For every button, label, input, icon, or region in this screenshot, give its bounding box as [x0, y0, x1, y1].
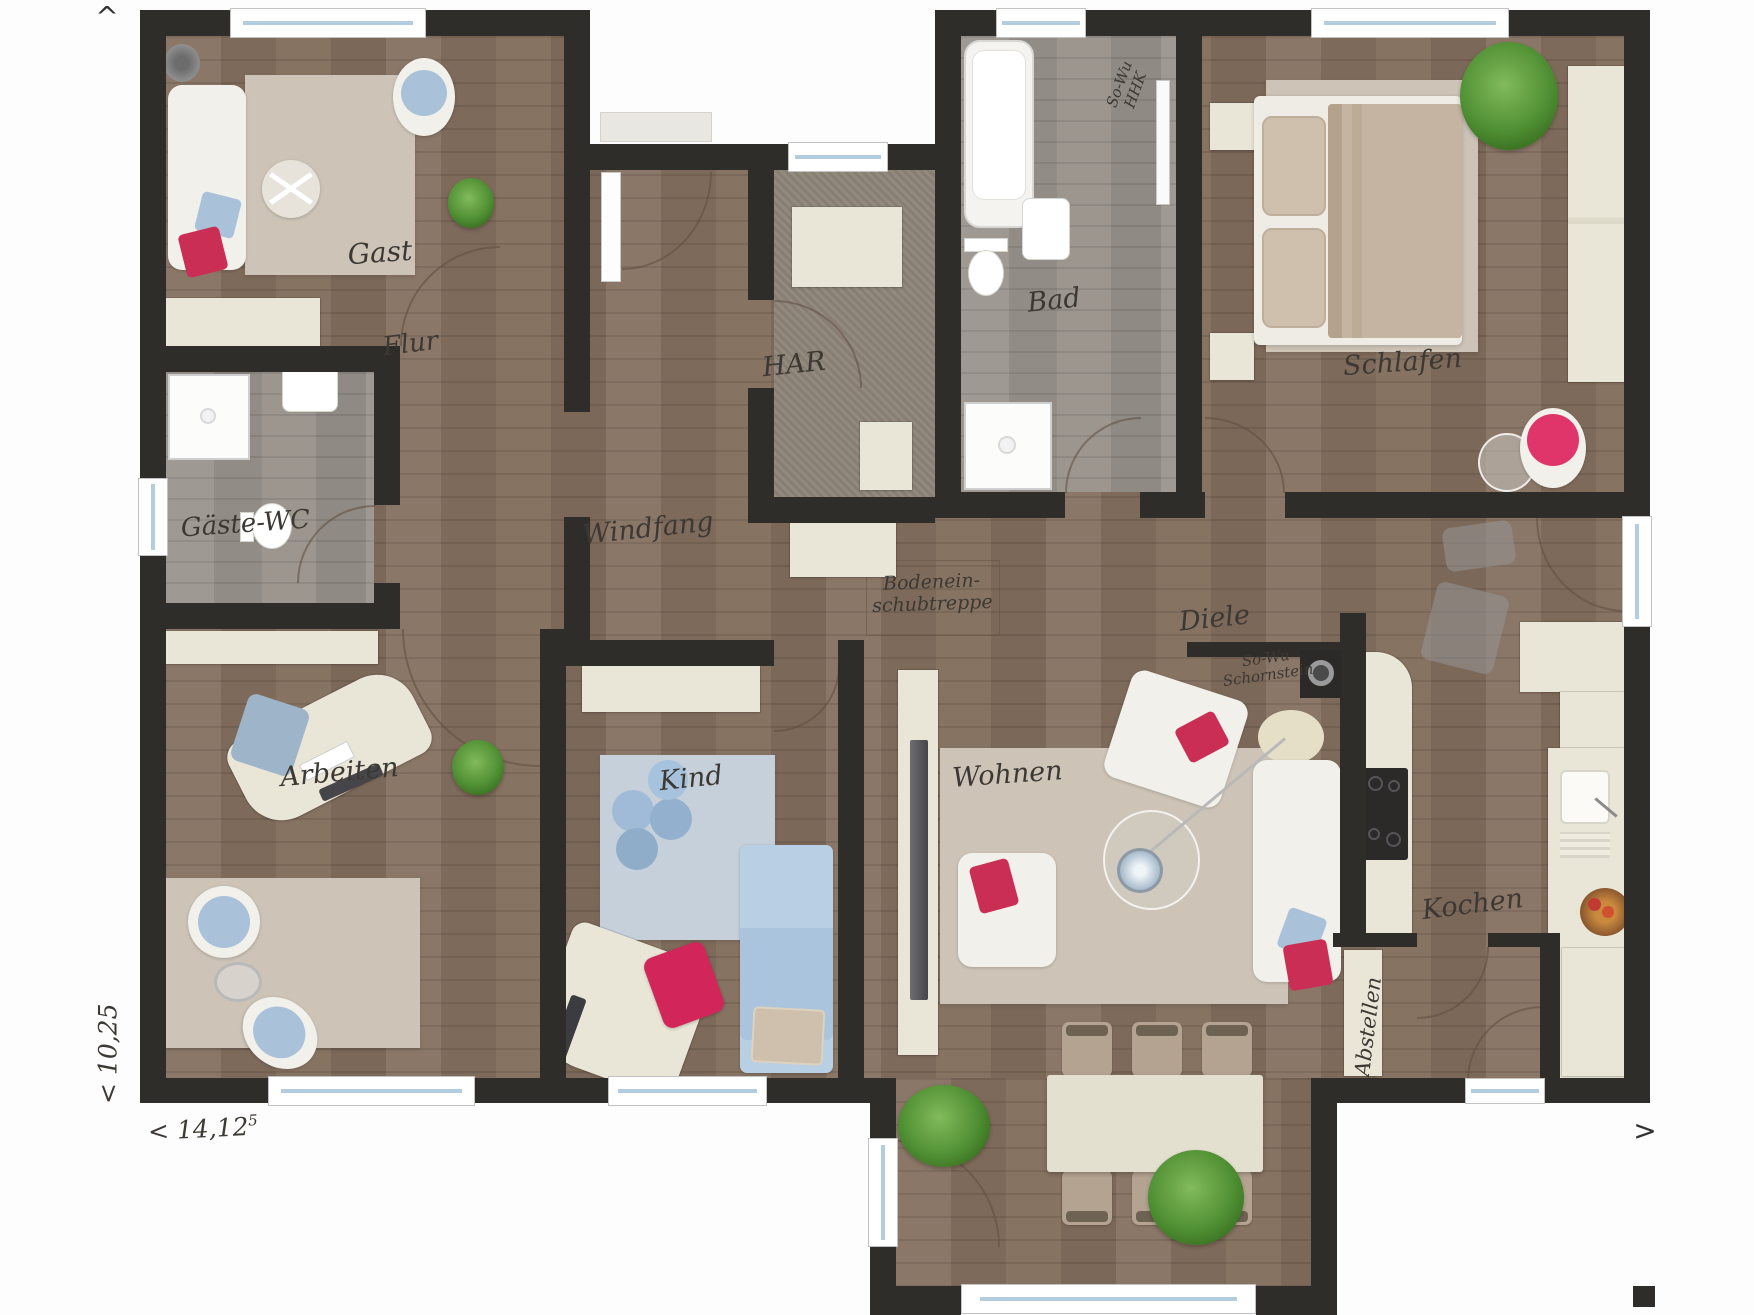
towel-radiator [1156, 80, 1170, 205]
wall-mid-top [566, 144, 961, 170]
annotation-attic-stairs: Bodenein- schubtreppe [869, 570, 994, 618]
dining-table [1047, 1075, 1263, 1172]
side-table-office [214, 962, 262, 1002]
plant-dining-right [1148, 1150, 1244, 1245]
wall-hall-top-c [1285, 492, 1624, 518]
window-har [788, 142, 888, 172]
wall-office-kid-divider [540, 629, 566, 1078]
terrace-door-kitchen [1622, 516, 1652, 627]
cushion-kid-petal-2 [650, 798, 692, 840]
wall-wc-top [140, 346, 400, 372]
kitchen-sink-drainboard [1560, 832, 1610, 858]
bed-kid-pillow [751, 1006, 826, 1066]
entry-mat [600, 112, 712, 142]
dimension-width-exponent: 5 [248, 1111, 258, 1129]
dimension-width-value: < 14,12 [147, 1112, 249, 1146]
arc-lamp-head [1117, 848, 1163, 893]
cushion-kid-petal-1 [612, 790, 654, 832]
nightstand-2 [1210, 333, 1254, 380]
plant-office [452, 740, 504, 795]
wall-bottom-b [475, 1078, 608, 1103]
wall-bath-left [935, 10, 961, 492]
site-corner-marker [1633, 1286, 1655, 1307]
dimension-depth: < 10,25 [94, 986, 122, 1122]
wall-ext-bottom-a [870, 1286, 961, 1315]
wall-ext-left-b [870, 1247, 896, 1286]
armchair-office-1 [188, 886, 260, 958]
plant-guest [448, 178, 494, 228]
plant-bedroom [1460, 42, 1558, 150]
wardrobe-bedroom [1568, 66, 1627, 382]
dining-chair-1 [1062, 1022, 1112, 1077]
wall-bottom-c [767, 1078, 870, 1103]
dimension-width: < 14,125 [137, 1112, 268, 1147]
wall-storage-top-b [1488, 933, 1560, 947]
wall-har-left-a [748, 170, 774, 300]
entry-cupboard [1562, 948, 1624, 1076]
wall-kid-top [564, 640, 774, 666]
wall-har-bottom [748, 497, 935, 523]
shower-bath-drain-icon [998, 436, 1016, 454]
wall-bath-bedroom-divider [1176, 36, 1202, 492]
wall-ext-left-a [870, 1078, 896, 1140]
compass-mark-right: > [1630, 1116, 1660, 1147]
plant-dining-left [898, 1085, 990, 1167]
wall-kitchen-bottom-b [1543, 1078, 1650, 1103]
wall-left [140, 10, 166, 1103]
round-mat-lamp [1258, 710, 1324, 764]
bed-pillow-1 [1262, 116, 1326, 216]
utility-box-har [860, 422, 912, 490]
window-kid [608, 1076, 767, 1106]
floor-plan: Gast Flur Gäste-WC Arbeiten Windfang HAR… [0, 0, 1754, 1315]
pillow-living-red [1282, 939, 1333, 992]
shower-drain-icon [200, 408, 216, 424]
wall-wc-right [374, 346, 400, 505]
window-bath [996, 8, 1086, 38]
cooktop-burner-1 [1368, 776, 1383, 791]
bed-blanket [1328, 104, 1462, 338]
cushion-kid-petal-3 [616, 828, 658, 870]
compass-mark-top: ^ [92, 2, 122, 33]
stool-bedroom-shell [1520, 408, 1586, 488]
cooktop-burner-4 [1386, 832, 1401, 847]
wall-living-kitchen-divider [1340, 613, 1366, 935]
fruit-apple-1 [1588, 898, 1601, 911]
side-entry-door [1465, 1078, 1545, 1104]
wall-storage-right [1540, 947, 1560, 1078]
entry-door-leaf [601, 172, 621, 282]
water-tank-har [792, 207, 902, 287]
toilet-bath-bowl [968, 250, 1004, 296]
dining-chair-4 [1062, 1170, 1112, 1225]
wall-ext-bottom-b [1256, 1286, 1337, 1315]
bed-pillow-2 [1262, 228, 1326, 328]
attic-stairs-line2: schubtreppe [872, 591, 993, 617]
cooktop-burner-2 [1388, 780, 1400, 792]
wall-guest-right-upper [564, 10, 590, 412]
sideboard-office [166, 631, 378, 664]
window-bedroom [1311, 8, 1509, 38]
dining-chair-2 [1132, 1022, 1182, 1077]
fruit-apple-2 [1602, 906, 1614, 918]
terrace-door-living [868, 1138, 898, 1247]
washbasin-bath [1022, 198, 1070, 260]
speaker-guest [164, 44, 200, 82]
wall-storage-top-a [1333, 933, 1417, 947]
wall-kid-living-divider [838, 640, 864, 1078]
window-office [268, 1076, 475, 1106]
dining-chair-3 [1202, 1022, 1252, 1077]
armchair-guest-round [393, 58, 455, 136]
sideboard-guest [162, 298, 320, 346]
wall-wc-bottom [140, 603, 400, 629]
tv-screen [910, 740, 928, 1000]
bathtub-inner [972, 50, 1026, 200]
wall-hall-top-a [935, 492, 1065, 518]
kitchen-desk-top [1520, 622, 1624, 692]
wall-bottom-a [140, 1078, 268, 1103]
wall-hall-top-b [1140, 492, 1205, 518]
nightstand-1 [1210, 103, 1254, 150]
sideboard-kid [582, 666, 760, 712]
kitchen-desk-side [1560, 692, 1624, 750]
kitchen-sink-basin [1560, 770, 1610, 824]
window-guest [230, 8, 426, 38]
cooktop-burner-3 [1368, 828, 1380, 840]
window-dining [961, 1284, 1256, 1314]
wall-ext-right [1311, 1078, 1337, 1315]
wall-har-left-b [748, 388, 774, 497]
